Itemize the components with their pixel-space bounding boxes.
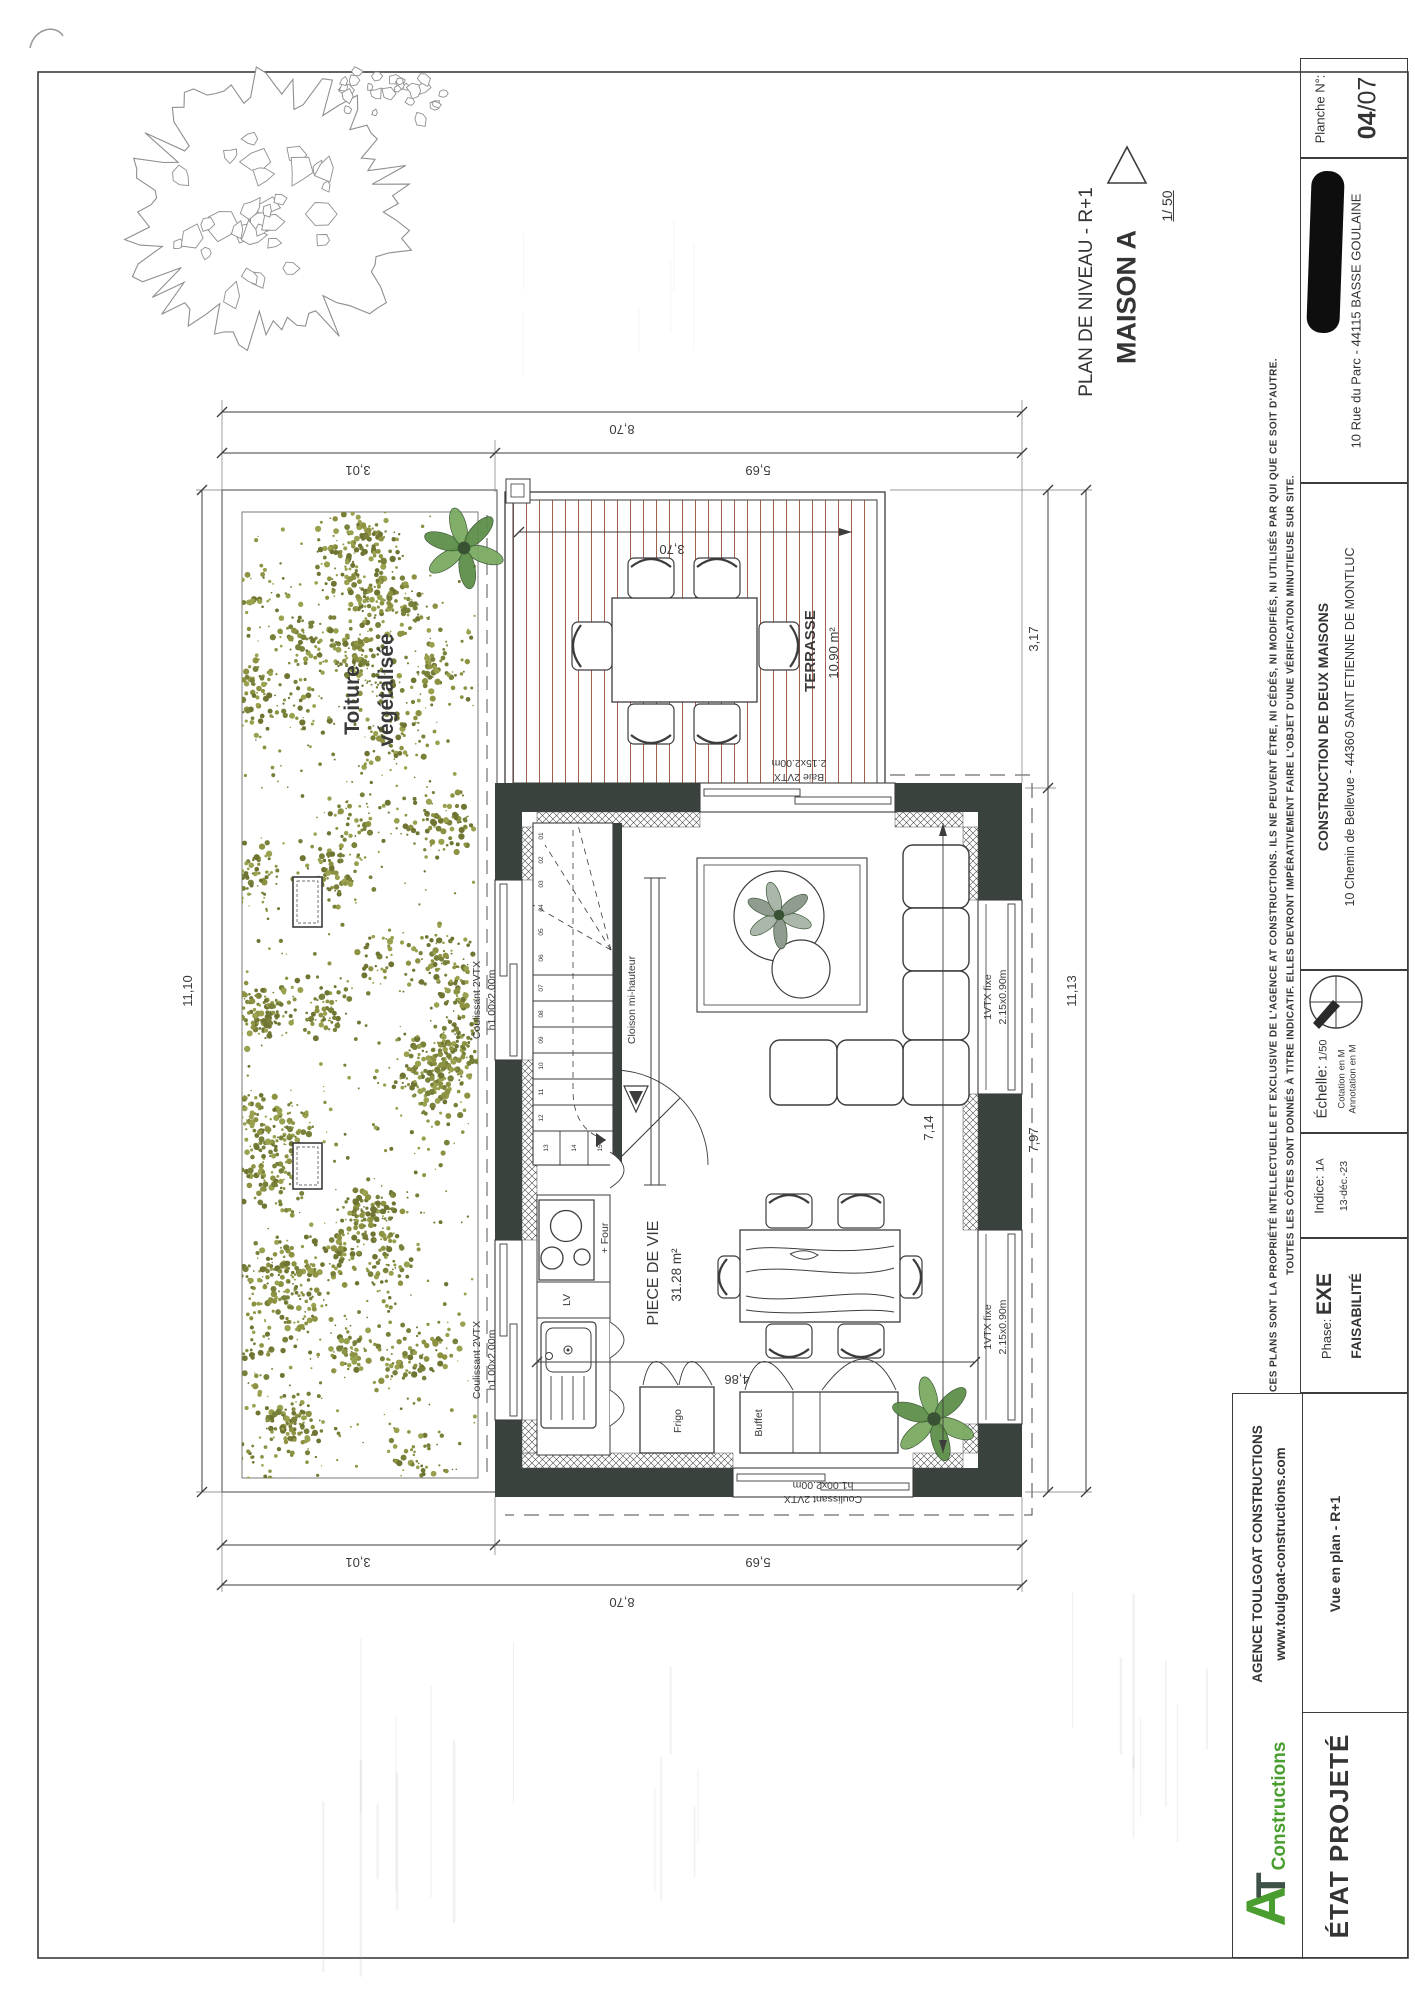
label-coul-left2-1: Coulissant 2VTX xyxy=(471,1321,483,1399)
planche-label: Planche N°: xyxy=(1314,75,1329,144)
label-coul-bottom-1: Coulissant 2VTX xyxy=(784,1493,862,1505)
dim-inner-height: 7,14 xyxy=(921,1115,936,1140)
drawing-scale-text: 1/ 50 xyxy=(1159,190,1175,221)
agency-name: AGENCE TOULGOAT CONSTRUCTIONS xyxy=(1250,1425,1266,1683)
logo-t: T xyxy=(1247,1872,1294,1898)
dim-bottom-total: 8,70 xyxy=(609,1595,634,1610)
titleblock-client-box: 10 Rue du Parc - 44115 BASSE GOULAINE xyxy=(1300,158,1408,483)
phase-line: Phase: EXE xyxy=(1313,1273,1337,1359)
label-oven: + Four xyxy=(599,1222,611,1253)
dim-inner-width: 4,86 xyxy=(724,1372,749,1387)
svg-text:08: 08 xyxy=(538,1010,545,1018)
label-baie-1: Baie 2VTX xyxy=(774,771,824,783)
titleblock-scale-box: Échelle: 1/50 Cotation en M Annotation e… xyxy=(1300,970,1408,1133)
kitchen xyxy=(537,1152,624,1455)
project-title: CONSTRUCTION DE DEUX MAISONS xyxy=(1315,603,1331,851)
label-living: PIECE DE VIE xyxy=(645,1221,662,1326)
agency-logo: ATConstructions xyxy=(1234,1742,1298,1927)
drawing-level-title: PLAN DE NIVEAU - R+1 xyxy=(1076,187,1098,397)
view-name: Vue en plan - R+1 xyxy=(1327,1496,1343,1613)
dim-top-seg1: 3,01 xyxy=(345,463,370,478)
label-living-area: 31.28 m² xyxy=(669,1248,684,1302)
scale-line: Échelle: 1/50 xyxy=(1313,1040,1330,1119)
half-height-partition xyxy=(651,878,659,1185)
drawing-name-title: MAISON A xyxy=(1111,230,1142,364)
svg-text:04: 04 xyxy=(538,904,545,912)
green-roof xyxy=(208,490,510,1504)
door-leaf xyxy=(613,1098,680,1165)
dim-right-total: 11,13 xyxy=(1064,975,1079,1007)
label-coul-left2-2: h1.00x2.00m xyxy=(486,1329,498,1390)
titleblock-footer-box: AGENCE TOULGOAT CONSTRUCTIONS www.toulgo… xyxy=(1232,1393,1408,1958)
footer-divider-h xyxy=(1303,1712,1409,1713)
dim-terrace-width: 3,70 xyxy=(659,542,684,557)
project-address: 10 Chemin de Bellevue - 44360 SAINT ETIE… xyxy=(1343,548,1357,907)
storage-units xyxy=(640,1359,898,1453)
titleblock-index-box: Indice: 1A 13-déc.-23 xyxy=(1300,1133,1408,1238)
dim-right-top: 3,17 xyxy=(1026,626,1041,651)
svg-text:06: 06 xyxy=(538,954,545,962)
state-label: ÉTAT PROJETÉ xyxy=(1325,1734,1355,1939)
svg-text:02: 02 xyxy=(538,856,545,864)
label-coul-bottom-2: h1.00x2.00m xyxy=(792,1479,853,1491)
label-roof-1: Toiture xyxy=(341,665,364,735)
annotation-note: Annotation en M xyxy=(1349,1044,1360,1113)
phase-status: FAISABILITÉ xyxy=(1348,1273,1364,1359)
disclaimer-line-2: TOUTES LES CÔTES SONT DONNÉS À TITRE IND… xyxy=(1285,475,1297,1275)
label-terrace: TERRASSE xyxy=(802,610,819,692)
scan-artifact xyxy=(30,29,63,48)
titleblock-planche-box: Planche N°: 04/07 xyxy=(1300,58,1408,158)
dim-right-bottom: 7,97 xyxy=(1026,1127,1041,1152)
index-line: Indice: 1A xyxy=(1313,1158,1328,1213)
agency-website: www.toulgoat-constructions.com xyxy=(1273,1447,1289,1660)
svg-text:05: 05 xyxy=(538,928,545,936)
titleblock-phase-box: Phase: EXE FAISABILITÉ xyxy=(1300,1238,1408,1393)
dim-top-seg2: 5,69 xyxy=(745,463,770,478)
tree-symbol xyxy=(125,67,449,351)
staircase xyxy=(533,823,708,1185)
scanned-floor-plan-sheet: 010203040506070809101112131415 xyxy=(0,0,1415,2000)
svg-text:01: 01 xyxy=(538,832,545,840)
dim-left: 11,10 xyxy=(180,975,195,1007)
label-cloison: Cloison mi-hauteur xyxy=(626,955,638,1044)
redacted-client-name xyxy=(1306,170,1345,333)
label-coul-left1-2: h1.00x2.00m xyxy=(486,969,498,1030)
client-address: 10 Rue du Parc - 44115 BASSE GOULAINE xyxy=(1350,194,1365,449)
roof-window-1-inner xyxy=(297,881,318,923)
dim-bottom-seg1: 3,01 xyxy=(345,1555,370,1570)
svg-text:14: 14 xyxy=(571,1144,578,1152)
label-fixe2-1: 1VTX fixe xyxy=(982,1304,994,1350)
planche-number: 04/07 xyxy=(1354,77,1383,140)
dim-top-total: 8,70 xyxy=(609,422,634,437)
svg-text:12: 12 xyxy=(538,1114,545,1122)
floor-plan-drawing: 010203040506070809101112131415 xyxy=(0,0,1415,2000)
label-fixe1-1: 1VTX fixe xyxy=(982,974,994,1020)
titleblock-project-box: CONSTRUCTION DE DEUX MAISONS 10 Chemin d… xyxy=(1300,483,1408,970)
label-fridge: Frigo xyxy=(672,1409,684,1433)
roof-window-2-inner xyxy=(297,1147,318,1185)
terrace-table xyxy=(612,598,757,702)
label-fixe2-2: 2.15x0.90m xyxy=(997,1299,1009,1354)
svg-text:15: 15 xyxy=(597,1144,604,1152)
faucet xyxy=(546,1353,553,1360)
label-buffet: Buffet xyxy=(753,1409,765,1436)
label-baie-2: 2.15x2.00m xyxy=(771,757,826,769)
sliding-window-left-1 xyxy=(495,880,522,1060)
svg-text:09: 09 xyxy=(538,1036,545,1044)
svg-text:10: 10 xyxy=(538,1062,545,1070)
cloison-wall xyxy=(613,823,622,1165)
label-coul-left1-1: Coulissant 2VTX xyxy=(471,961,483,1039)
label-roof-2: végétalisée xyxy=(375,633,398,746)
footer-divider-v xyxy=(1302,1394,1303,1959)
svg-text:03: 03 xyxy=(538,880,545,888)
svg-text:11: 11 xyxy=(538,1088,545,1095)
dining-table xyxy=(740,1230,900,1322)
logo-text: Constructions xyxy=(1269,1742,1290,1871)
index-date: 13-déc.-23 xyxy=(1338,1161,1350,1211)
svg-text:13: 13 xyxy=(543,1144,550,1152)
svg-text:07: 07 xyxy=(538,984,545,992)
label-fixe1-2: 2.15x0.90m xyxy=(997,969,1009,1024)
disclaimer-line-1: CES PLANS SONT LA PROPRIÉTÉ INTELLECTUEL… xyxy=(1268,358,1280,1392)
delta-triangle-icon xyxy=(1108,147,1146,183)
sliding-window-left-2 xyxy=(495,1240,522,1420)
label-terrace-area: 10.90 m² xyxy=(826,627,841,679)
label-dishwasher: LV xyxy=(561,1294,573,1306)
dim-bottom-seg2: 5,69 xyxy=(745,1555,770,1570)
